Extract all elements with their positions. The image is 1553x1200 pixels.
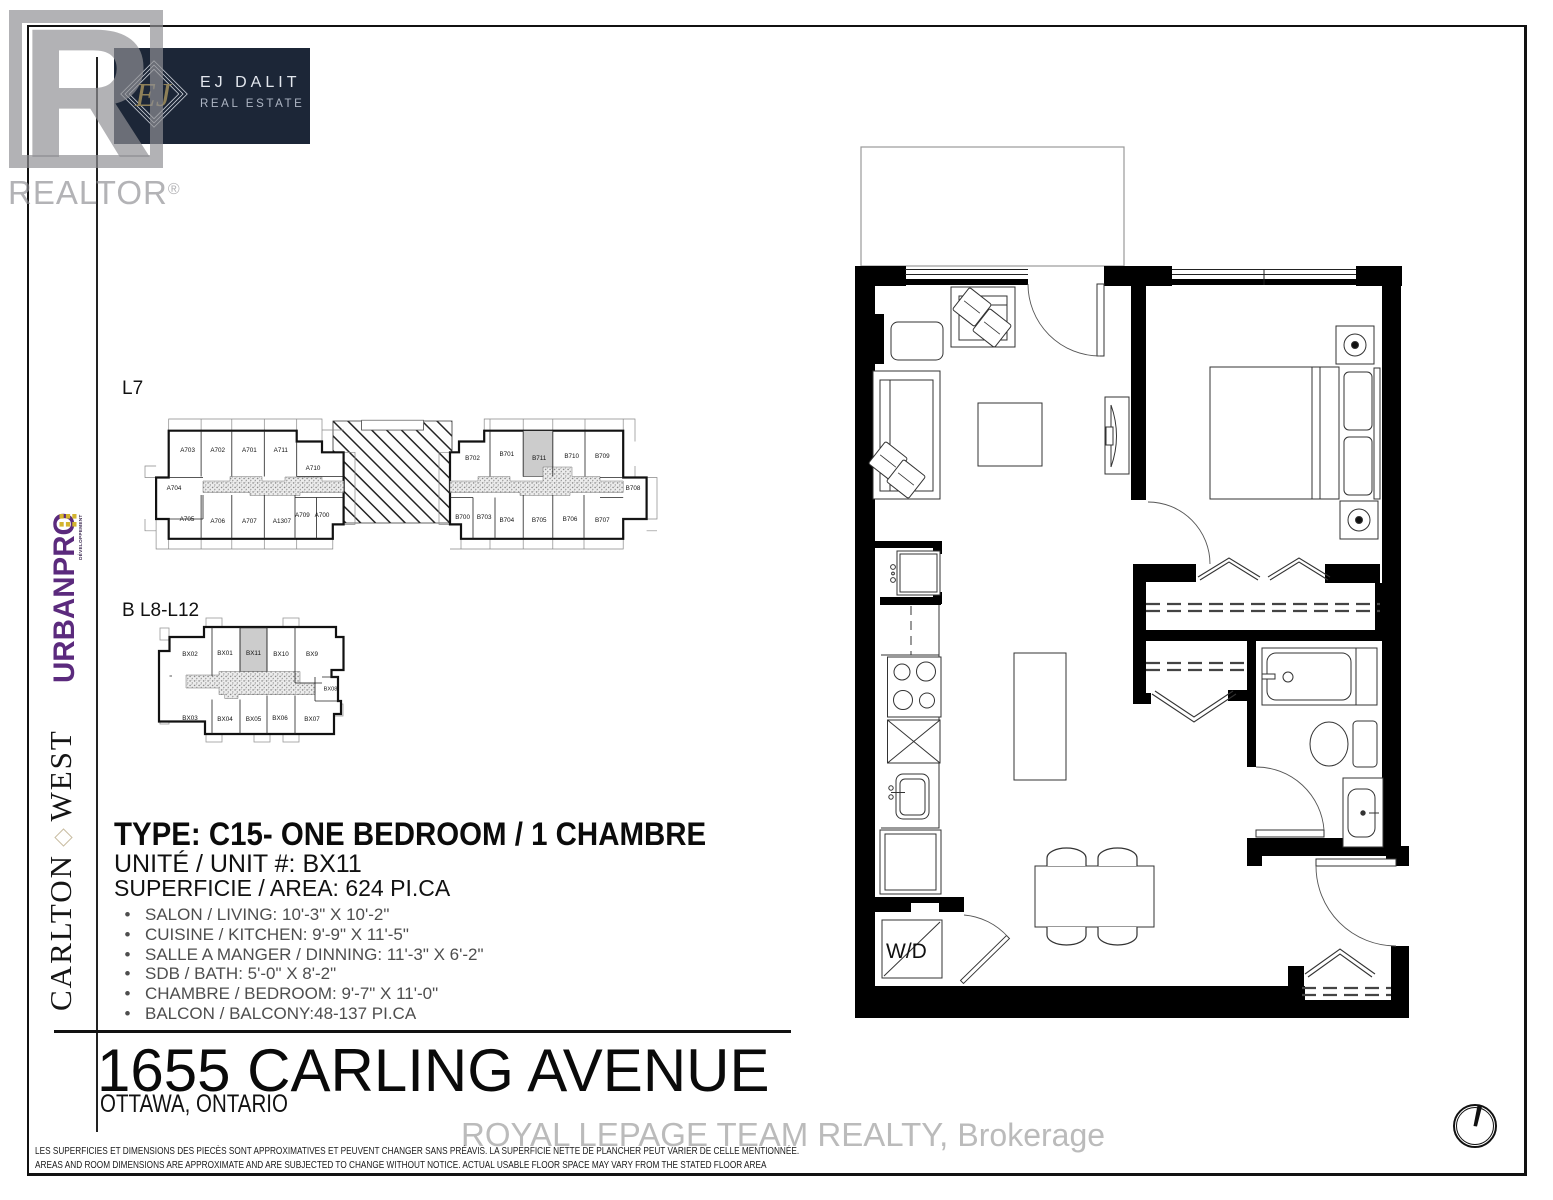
svg-text:A706: A706 (210, 518, 225, 525)
svg-text:BX05: BX05 (246, 716, 262, 723)
svg-text:A705: A705 (180, 516, 195, 523)
svg-text:BX06: BX06 (272, 715, 288, 722)
svg-text:A702: A702 (210, 447, 225, 454)
svg-text:BX07: BX07 (304, 716, 320, 723)
svg-text:B711: B711 (532, 455, 547, 462)
svg-text:A710: A710 (306, 465, 321, 472)
svg-text:B705: B705 (532, 517, 547, 524)
svg-text:A701: A701 (242, 447, 257, 454)
svg-text:BX9: BX9 (306, 651, 318, 658)
svg-text:B708: B708 (626, 485, 641, 492)
svg-text:B706: B706 (563, 516, 578, 523)
svg-text:BX03: BX03 (182, 715, 198, 722)
svg-text:B707: B707 (595, 517, 610, 524)
svg-text:B703: B703 (477, 514, 492, 521)
svg-text:BX01: BX01 (217, 650, 233, 657)
svg-text:BX11: BX11 (246, 650, 261, 657)
svg-text:A1307: A1307 (273, 518, 292, 525)
svg-text:W/D: W/D (886, 940, 927, 963)
svg-text:B704: B704 (499, 517, 514, 524)
svg-text:A704: A704 (167, 485, 182, 492)
svg-text:A709: A709 (295, 512, 310, 519)
svg-text:B709: B709 (595, 453, 610, 460)
svg-text:BX04: BX04 (217, 716, 233, 723)
svg-text:A711: A711 (274, 447, 289, 454)
svg-text:BX02: BX02 (182, 651, 198, 658)
svg-text:B700: B700 (455, 514, 470, 521)
svg-text:A700: A700 (315, 512, 330, 519)
svg-text:BX08: BX08 (324, 687, 338, 693)
svg-text:B701: B701 (499, 451, 514, 458)
svg-text:B702: B702 (465, 455, 480, 462)
svg-text:B710: B710 (564, 453, 579, 460)
svg-text:A707: A707 (242, 518, 257, 525)
svg-text:BX10: BX10 (273, 651, 289, 658)
svg-text:A703: A703 (180, 447, 195, 454)
